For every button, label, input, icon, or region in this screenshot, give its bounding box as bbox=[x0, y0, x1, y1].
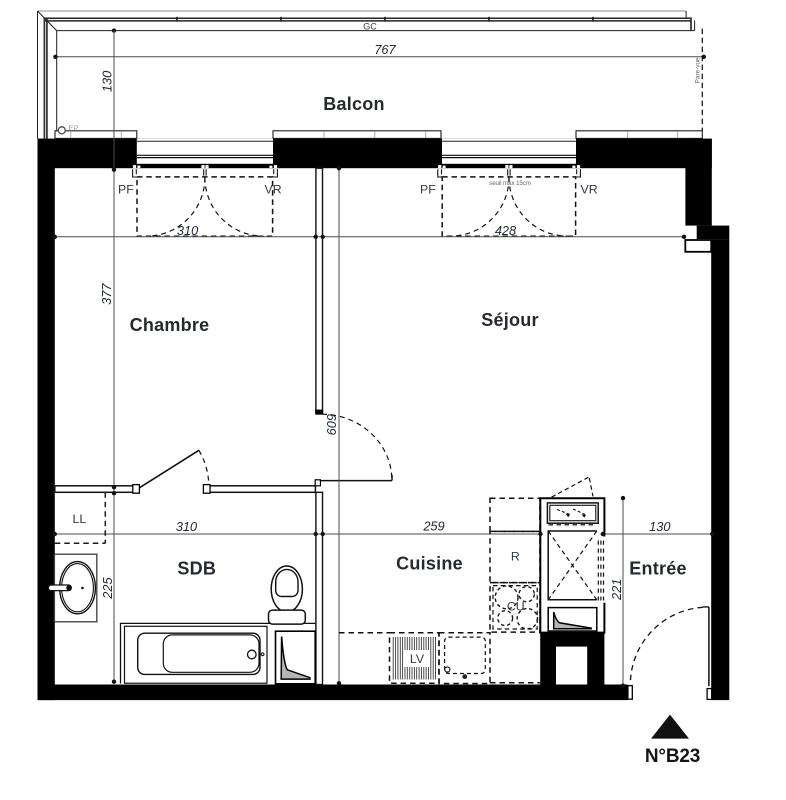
svg-text:N°B23: N°B23 bbox=[645, 746, 700, 767]
svg-text:Balcon: Balcon bbox=[323, 94, 385, 114]
svg-text:PF: PF bbox=[420, 183, 436, 197]
svg-text:LL: LL bbox=[73, 512, 87, 526]
svg-text:Entrée: Entrée bbox=[629, 559, 687, 579]
svg-text:310: 310 bbox=[177, 223, 199, 238]
svg-text:Séjour: Séjour bbox=[481, 310, 539, 330]
svg-text:310: 310 bbox=[176, 519, 198, 534]
svg-text:LV: LV bbox=[410, 652, 425, 666]
svg-text:221: 221 bbox=[609, 579, 624, 601]
svg-text:PF: PF bbox=[118, 183, 134, 197]
svg-text:130: 130 bbox=[649, 519, 671, 534]
svg-text:R: R bbox=[511, 549, 520, 563]
svg-text:Chambre: Chambre bbox=[130, 315, 210, 335]
svg-text:609: 609 bbox=[324, 414, 339, 435]
svg-text:EP: EP bbox=[69, 124, 79, 133]
svg-text:767: 767 bbox=[374, 42, 396, 57]
svg-text:259: 259 bbox=[422, 519, 444, 534]
svg-text:377: 377 bbox=[99, 283, 114, 305]
svg-text:VR: VR bbox=[265, 183, 282, 197]
svg-text:Cuisine: Cuisine bbox=[396, 553, 463, 573]
svg-text:130: 130 bbox=[99, 70, 114, 92]
svg-text:225: 225 bbox=[100, 576, 115, 599]
svg-text:seuil max 15cm: seuil max 15cm bbox=[489, 180, 531, 187]
svg-text:Pare-vue: Pare-vue bbox=[695, 57, 702, 83]
svg-text:SDB: SDB bbox=[177, 559, 216, 579]
svg-text:428: 428 bbox=[495, 223, 517, 238]
svg-text:CU: CU bbox=[507, 600, 525, 614]
svg-text:GC: GC bbox=[363, 22, 377, 32]
svg-text:VR: VR bbox=[581, 183, 598, 197]
